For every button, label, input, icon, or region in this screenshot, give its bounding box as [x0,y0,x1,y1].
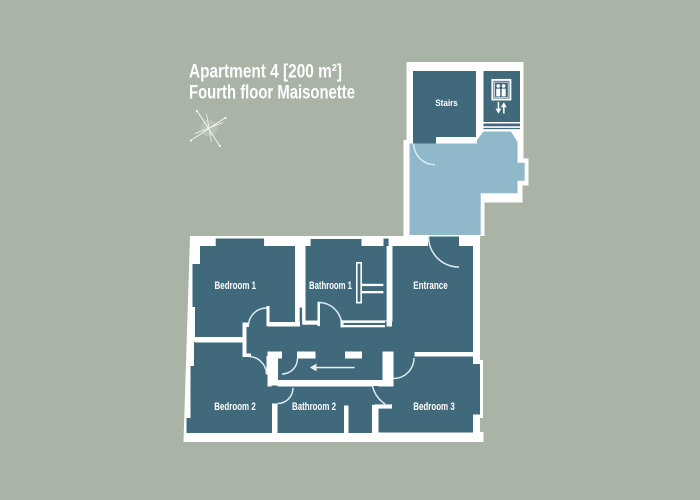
svg-text:Bathroom 1: Bathroom 1 [309,280,352,292]
svg-text:Bedroom 1: Bedroom 1 [215,280,257,292]
svg-text:Fourth floor Maisonette: Fourth floor Maisonette [189,83,355,104]
svg-text:Stairs: Stairs [435,98,458,109]
svg-text:Entrance: Entrance [413,280,448,292]
svg-text:Bedroom 3: Bedroom 3 [413,401,455,413]
svg-text:Bedroom 2: Bedroom 2 [214,401,256,413]
svg-text:Apartment 4 [200 m²]: Apartment 4 [200 m²] [189,62,342,83]
svg-text:Bathroom 2: Bathroom 2 [292,401,336,413]
